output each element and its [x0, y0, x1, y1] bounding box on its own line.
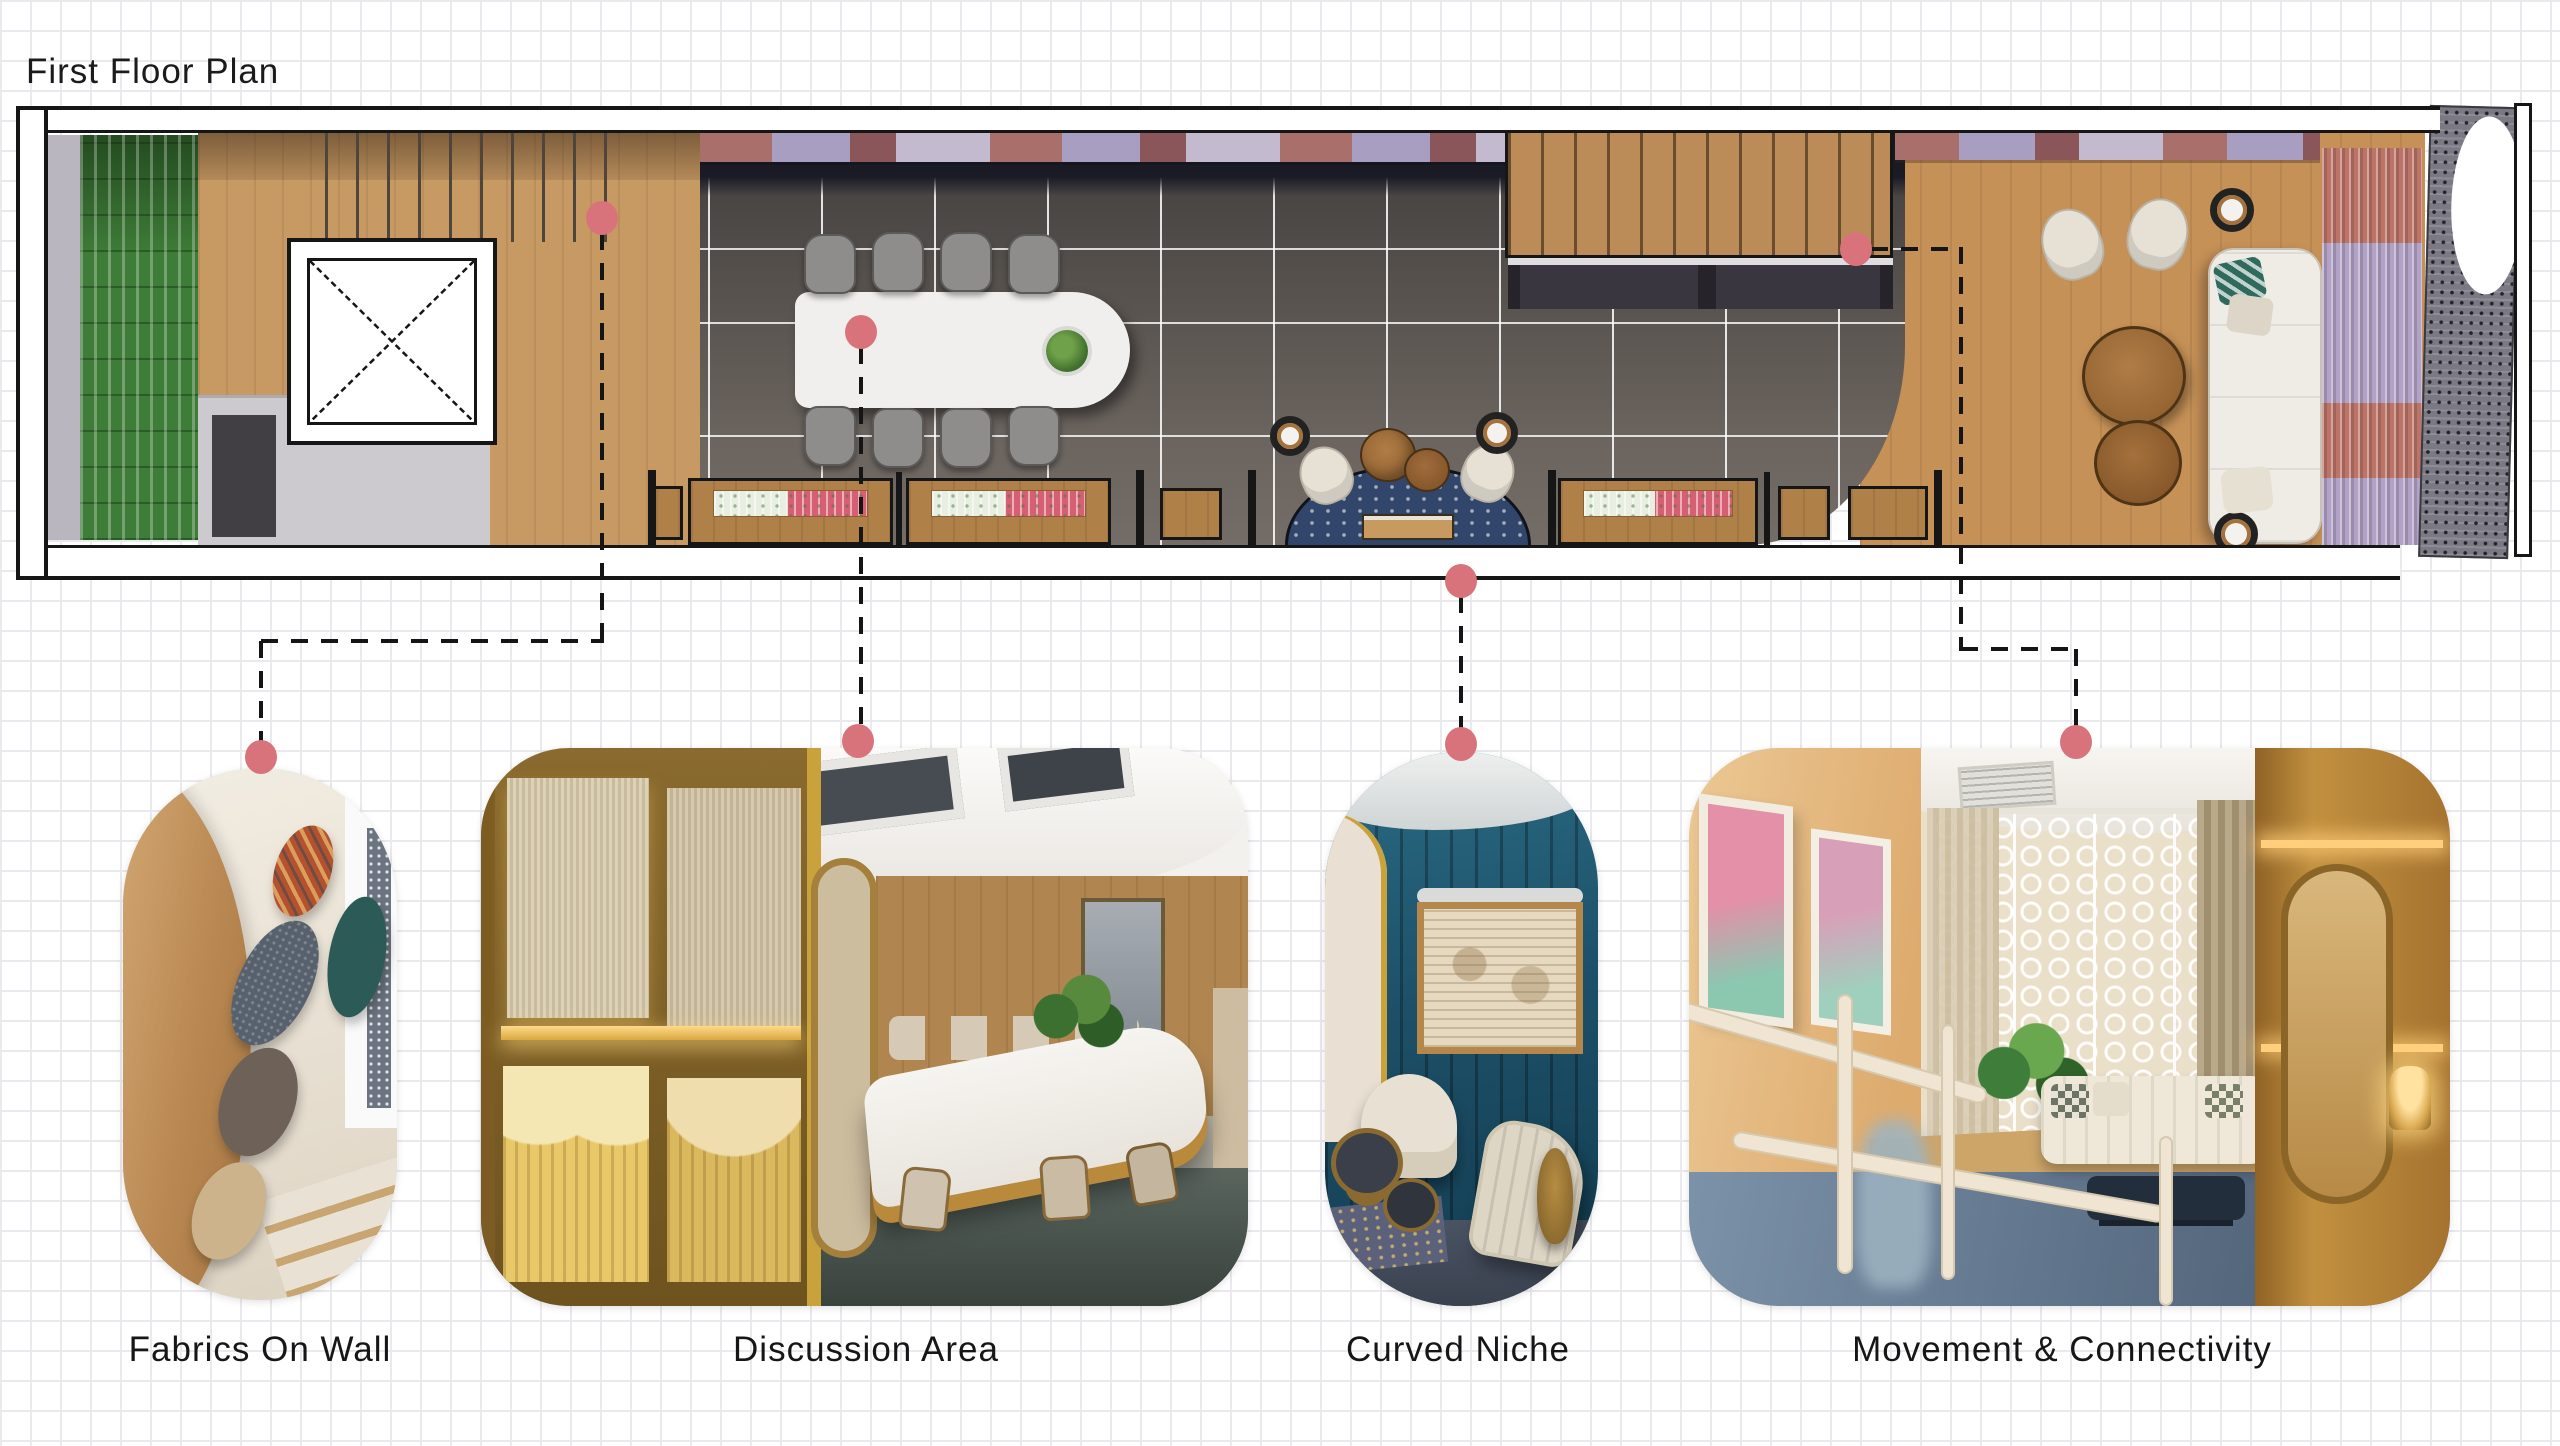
plan-left-wall — [16, 106, 48, 580]
photo2-chair-front — [1039, 1154, 1091, 1221]
leader-line — [859, 347, 863, 727]
plan-chair — [804, 406, 856, 466]
leader-line — [2074, 649, 2078, 729]
photo-fabrics-on-wall — [123, 768, 397, 1300]
photo4-table-lamp — [2389, 1066, 2431, 1130]
photo2-glow-shelf — [501, 1026, 801, 1040]
plan-top-wall — [16, 106, 2440, 133]
plan-chair — [872, 232, 924, 292]
marker-discussion-area — [845, 315, 877, 349]
leader-line — [600, 233, 604, 641]
plan-fringe-textile-right — [1895, 132, 2320, 160]
leader-line — [1459, 596, 1463, 730]
leader-line — [259, 641, 263, 745]
plan-entry-grey-strip — [46, 135, 80, 540]
presentation-board: First Floor Plan — [0, 0, 2560, 1446]
photo2-stairs-sliver — [1213, 988, 1248, 1188]
plan-wall-stub — [1934, 470, 1942, 547]
plan-elevator-shaft — [287, 238, 497, 445]
marker-photo-fabrics-on-wall — [245, 740, 277, 774]
plan-table-plant-icon — [1046, 330, 1088, 372]
plan-dark-doorway — [212, 415, 276, 537]
plan-chair — [940, 232, 992, 292]
plan-booth-cushions — [1583, 490, 1733, 517]
plan-chair — [804, 234, 856, 294]
page-title: First Floor Plan — [26, 52, 279, 92]
marker-photo-movement-connectivity — [2060, 725, 2092, 759]
plan-curtain-strip — [2322, 148, 2422, 545]
photo2-cabinet-upper-panel — [667, 788, 801, 1038]
photo4-person-blur — [1857, 1120, 1931, 1288]
marker-photo-discussion-area — [842, 724, 874, 758]
plan-chair — [872, 408, 924, 468]
photo2-cabinet-upper-panel — [507, 778, 649, 1018]
photo4-artwork — [1699, 793, 1793, 1028]
marker-fabrics-on-wall — [586, 201, 618, 235]
marker-curved-niche — [1445, 564, 1477, 598]
photo2-drape-display — [503, 1066, 649, 1282]
photo4-glow-strip — [2261, 840, 2443, 848]
photo3-gold-table — [1383, 1178, 1439, 1232]
plan-bottom-wall — [16, 545, 2400, 580]
plan-sofa-pillow — [2226, 293, 2275, 337]
photo4-ac-grill — [1958, 761, 2057, 812]
plan-side-table — [1848, 486, 1928, 540]
leader-line — [261, 639, 604, 643]
photo3-artwork-frame — [1417, 902, 1583, 1054]
photo-curved-niche — [1325, 752, 1598, 1306]
plan-staircase — [1505, 132, 1893, 258]
caption-curved-niche: Curved Niche — [1346, 1330, 1570, 1370]
elevator-x-icon — [310, 261, 474, 422]
photo4-sofa-pillow-checker — [2051, 1084, 2089, 1118]
plan-lounge-bench — [1362, 514, 1454, 540]
photo4-railing-post — [2159, 1136, 2173, 1306]
plan-round-stool — [2210, 188, 2254, 232]
plan-elevator-inner — [307, 258, 477, 425]
plan-coffee-table — [2082, 326, 2186, 426]
photo2-plant — [1026, 970, 1126, 1054]
plan-wall-stub — [1136, 470, 1144, 547]
plan-chair — [940, 408, 992, 468]
photo-movement-connectivity — [1689, 748, 2450, 1306]
plan-side-table — [1778, 486, 1830, 540]
photo4-pill-mirror — [2281, 864, 2393, 1204]
plan-chair — [1008, 406, 1060, 466]
plan-stair-recess — [1508, 265, 1893, 309]
photo3-gold-vase — [1537, 1148, 1573, 1244]
plan-green-mosaic-wall — [80, 135, 198, 540]
caption-fabrics-on-wall: Fabrics On Wall — [129, 1330, 392, 1370]
leader-line — [1961, 647, 2076, 651]
plan-booth-cushions — [713, 490, 868, 517]
plan-wall-stub — [648, 470, 656, 547]
photo4-sofa-pillow — [2093, 1082, 2129, 1116]
plan-sofa-pillow — [2220, 466, 2274, 515]
caption-movement-connectivity: Movement & Connectivity — [1852, 1330, 2272, 1370]
photo2-drape-display — [667, 1078, 801, 1282]
photo4-sofa-pillow-checker — [2205, 1084, 2243, 1118]
plan-chair — [1008, 234, 1060, 294]
plan-booth-cushions — [931, 490, 1086, 517]
plan-side-table — [1160, 488, 1222, 540]
marker-movement-connectivity — [1840, 232, 1872, 266]
plan-booth-seating — [1558, 478, 1758, 545]
marker-photo-curved-niche — [1445, 727, 1477, 761]
photo4-railing-post — [1837, 994, 1853, 1274]
plan-wall-stub — [896, 472, 902, 547]
caption-discussion-area: Discussion Area — [733, 1330, 999, 1370]
plan-wall-stub — [1248, 470, 1256, 547]
leader-line — [1871, 247, 1961, 251]
plan-wall-stub — [1764, 472, 1770, 547]
plan-slat-partition — [325, 132, 627, 242]
photo-discussion-area — [481, 748, 1248, 1306]
plan-coffee-table — [2094, 420, 2182, 506]
photo2-chair-front — [898, 1166, 952, 1233]
photo2-pod-pill — [811, 858, 877, 1258]
plan-side-table — [653, 486, 683, 540]
plan-lounge-table — [1404, 448, 1450, 492]
leader-line — [1959, 247, 1963, 651]
plan-fringe-textile-left — [700, 132, 1558, 162]
plan-round-stool — [1270, 416, 1310, 456]
plan-stair-railing — [1508, 258, 1893, 265]
plan-right-wall — [2514, 103, 2532, 557]
plan-booth-seating — [906, 478, 1111, 545]
photo4-railing-post — [1941, 1024, 1955, 1280]
plan-jali-screen — [2418, 105, 2520, 559]
plan-round-stool — [1476, 412, 1518, 454]
plan-wall-stub — [1548, 470, 1556, 547]
